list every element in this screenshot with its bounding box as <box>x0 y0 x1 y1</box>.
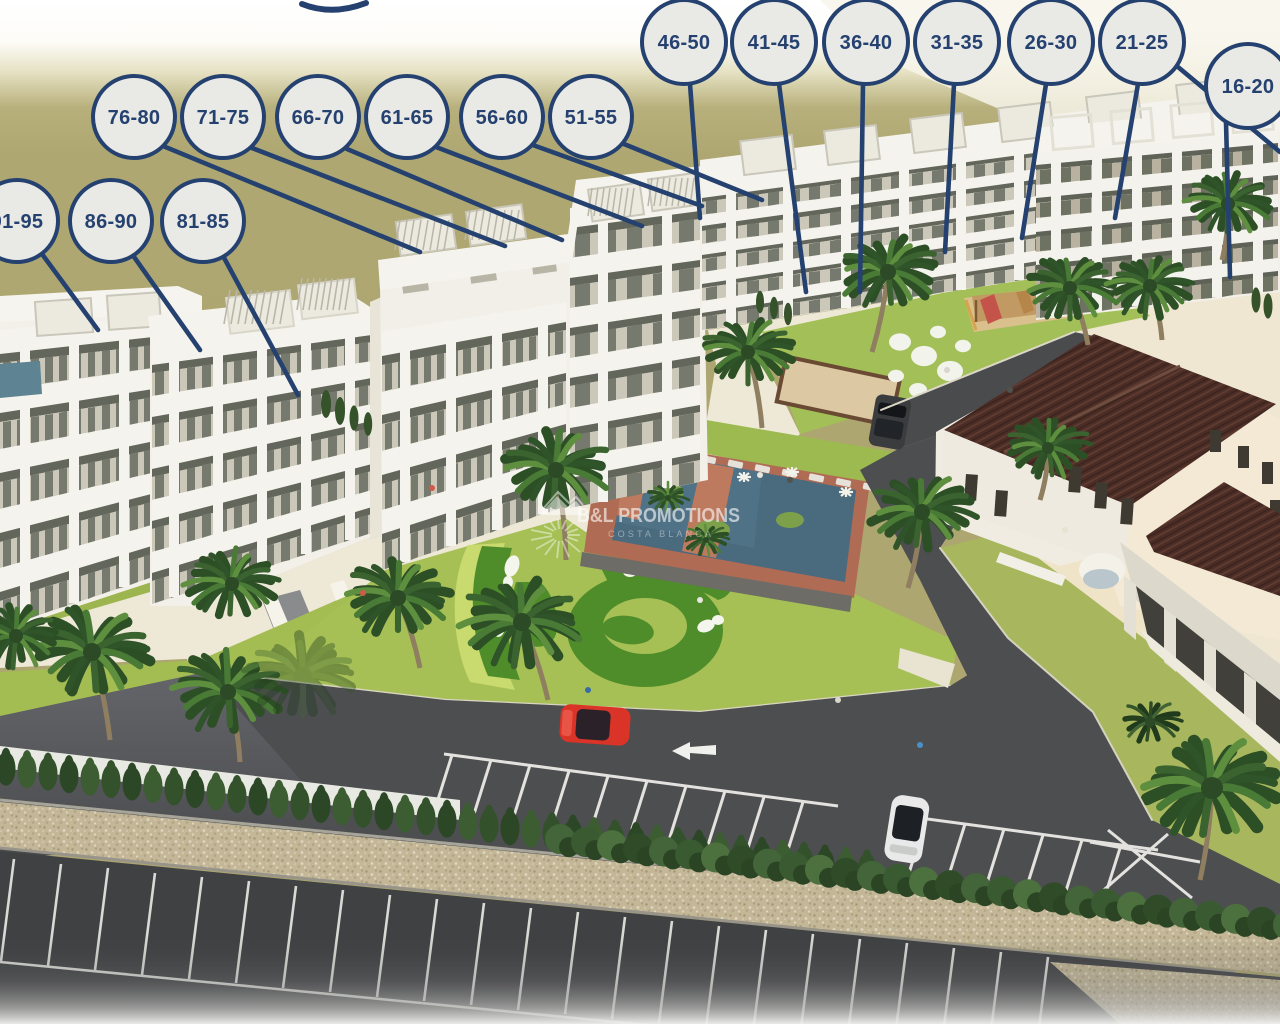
svg-text:61-65: 61-65 <box>381 107 434 129</box>
svg-text:81-85: 81-85 <box>177 211 230 233</box>
svg-text:71-75: 71-75 <box>197 107 250 129</box>
svg-text:41-45: 41-45 <box>748 32 801 54</box>
svg-text:COSTA BLANCA: COSTA BLANCA <box>608 529 714 539</box>
svg-text:46-50: 46-50 <box>658 32 711 54</box>
svg-text:31-35: 31-35 <box>931 32 984 54</box>
svg-text:56-60: 56-60 <box>476 107 529 129</box>
svg-text:16-20: 16-20 <box>1222 76 1275 98</box>
svg-text:51-55: 51-55 <box>565 107 618 129</box>
svg-text:26-30: 26-30 <box>1025 32 1078 54</box>
svg-text:36-40: 36-40 <box>840 32 893 54</box>
svg-text:86-90: 86-90 <box>85 211 138 233</box>
svg-text:76-80: 76-80 <box>108 107 161 129</box>
svg-text:21-25: 21-25 <box>1116 32 1169 54</box>
svg-text:B&L PROMOTIONS: B&L PROMOTIONS <box>577 505 740 527</box>
svg-text:91-95: 91-95 <box>0 211 43 233</box>
svg-text:66-70: 66-70 <box>292 107 345 129</box>
